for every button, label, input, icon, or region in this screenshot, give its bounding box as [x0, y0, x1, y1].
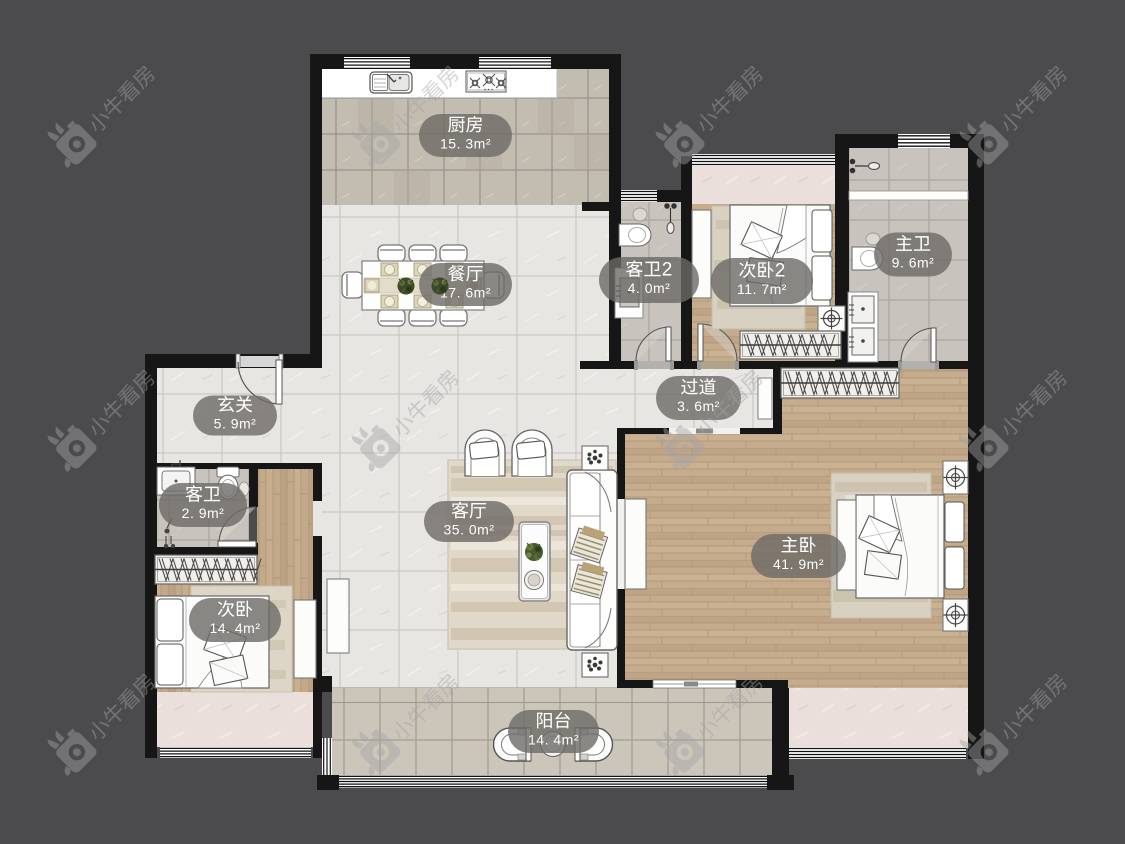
svg-text:5. 9m²: 5. 9m²	[214, 416, 257, 432]
svg-text:14. 4m²: 14. 4m²	[210, 620, 261, 636]
svg-text:41. 9m²: 41. 9m²	[773, 556, 824, 572]
svg-text:11. 7m²: 11. 7m²	[737, 281, 787, 297]
svg-text:2: 2	[662, 260, 673, 281]
svg-text:9. 6m²: 9. 6m²	[892, 255, 935, 271]
svg-text:2: 2	[775, 261, 786, 282]
svg-text:35. 0m²: 35. 0m²	[444, 522, 495, 538]
svg-text:15. 3m²: 15. 3m²	[440, 136, 491, 152]
svg-text:4. 0m²: 4. 0m²	[628, 280, 671, 296]
svg-text:2. 9m²: 2. 9m²	[182, 505, 225, 521]
svg-text:14. 4m²: 14. 4m²	[528, 732, 579, 748]
